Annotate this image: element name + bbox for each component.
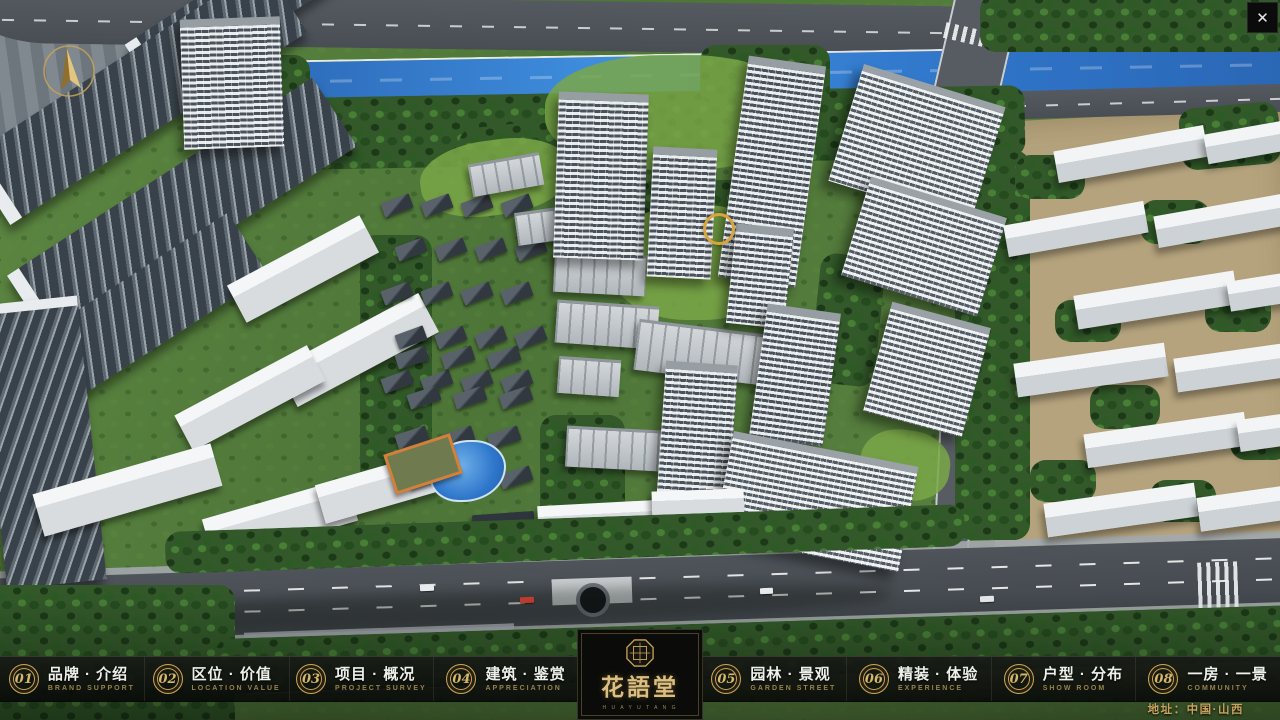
highrise-building bbox=[180, 16, 284, 149]
menu-sublabel: PROJECT SURVEY bbox=[335, 685, 427, 692]
project-logo-panel[interactable]: 花語堂 H U A Y U T A N G bbox=[577, 629, 703, 720]
menu-group-left: 01 品牌 · 介绍BRAND SUPPORT 02 区位 · 价值LOCATI… bbox=[0, 657, 578, 701]
trees bbox=[1090, 385, 1160, 429]
menu-badge: 05 bbox=[711, 664, 741, 694]
menu-label: 建筑 · 鉴赏 bbox=[485, 667, 565, 682]
presentation-window: { "window": { "close": "✕" }, "map": { "… bbox=[0, 0, 1280, 720]
menu-label: 一房 · 一景 bbox=[1187, 667, 1267, 682]
logo-frame: 花語堂 H U A Y U T A N G bbox=[581, 633, 699, 716]
trees bbox=[1030, 460, 1096, 502]
apartment-building bbox=[557, 356, 621, 397]
menu-sublabel: LOCATION VALUE bbox=[192, 685, 281, 692]
menu-badge: 06 bbox=[859, 664, 889, 694]
menu-label: 品牌 · 介绍 bbox=[48, 667, 128, 682]
menu-badge: 04 bbox=[446, 664, 476, 694]
menu-badge: 07 bbox=[1004, 664, 1034, 694]
menu-item-project[interactable]: 03 项目 · 概况PROJECT SURVEY bbox=[289, 657, 434, 701]
close-button[interactable]: ✕ bbox=[1247, 2, 1278, 33]
menu-badge: 02 bbox=[153, 664, 183, 694]
menu-number: 08 bbox=[1154, 672, 1172, 687]
seal-emblem-icon bbox=[626, 639, 654, 667]
vehicle bbox=[980, 596, 994, 602]
menu-number: 03 bbox=[302, 672, 320, 687]
project-subtitle: H U A Y U T A N G bbox=[602, 705, 677, 711]
trees bbox=[980, 0, 1280, 52]
menu-sublabel: COMMUNITY bbox=[1187, 685, 1248, 692]
menu-item-floorplan[interactable]: 07 户型 · 分布SHOW ROOM bbox=[991, 657, 1136, 701]
menu-label: 精装 · 体验 bbox=[898, 667, 978, 682]
menu-sublabel: BRAND SUPPORT bbox=[48, 685, 135, 692]
menu-item-location[interactable]: 02 区位 · 价值LOCATION VALUE bbox=[144, 657, 289, 701]
vehicle bbox=[760, 588, 773, 594]
menu-label: 园林 · 景观 bbox=[750, 667, 830, 682]
vehicle bbox=[420, 585, 434, 591]
menu-sublabel: GARDEN STREET bbox=[750, 685, 836, 692]
address-text: 地址：中国·山西 bbox=[1148, 701, 1244, 717]
menu-badge: 01 bbox=[9, 664, 39, 694]
apartment-building bbox=[565, 426, 663, 472]
menu-number: 01 bbox=[15, 672, 33, 687]
menu-number: 07 bbox=[1010, 672, 1028, 687]
menu-number: 05 bbox=[717, 672, 735, 687]
menu-number: 04 bbox=[452, 672, 470, 687]
menu-sublabel: EXPERIENCE bbox=[898, 685, 963, 692]
menu-label: 区位 · 价值 bbox=[192, 667, 272, 682]
vehicle bbox=[520, 597, 534, 603]
menu-group-right: 05 园林 · 景观GARDEN STREET 06 精装 · 体验EXPERI… bbox=[702, 657, 1280, 701]
menu-item-brand[interactable]: 01 品牌 · 介绍BRAND SUPPORT bbox=[0, 657, 144, 701]
menu-sublabel: APPRECIATION bbox=[485, 685, 561, 692]
menu-item-interior[interactable]: 06 精装 · 体验EXPERIENCE bbox=[846, 657, 991, 701]
menu-number: 02 bbox=[158, 672, 176, 687]
landmark-ring bbox=[703, 213, 735, 245]
menu-item-views[interactable]: 08 一房 · 一景COMMUNITY bbox=[1135, 657, 1280, 701]
compass-icon[interactable] bbox=[37, 39, 101, 103]
menu-item-architecture[interactable]: 04 建筑 · 鉴赏APPRECIATION bbox=[433, 657, 578, 701]
menu-badge: 03 bbox=[296, 664, 326, 694]
highrise-building bbox=[553, 91, 649, 260]
project-title: 花語堂 bbox=[601, 668, 679, 702]
map-3d-view[interactable] bbox=[0, 0, 1280, 720]
menu-item-garden[interactable]: 05 园林 · 景观GARDEN STREET bbox=[702, 657, 846, 701]
highrise-building bbox=[647, 146, 718, 279]
menu-sublabel: SHOW ROOM bbox=[1043, 685, 1107, 692]
menu-label: 户型 · 分布 bbox=[1043, 667, 1123, 682]
menu-number: 06 bbox=[865, 672, 883, 687]
menu-label: 项目 · 概况 bbox=[335, 667, 415, 682]
menu-badge: 08 bbox=[1148, 664, 1178, 694]
